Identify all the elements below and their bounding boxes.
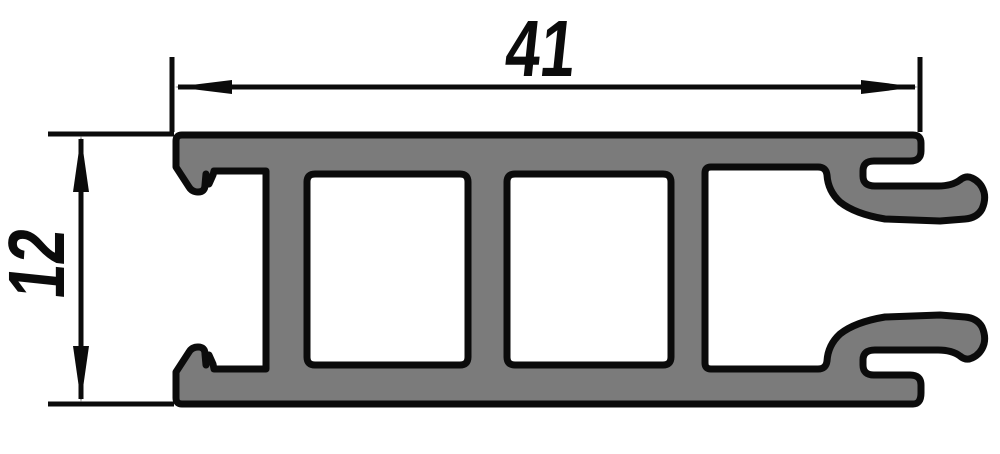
- arrowhead-right-icon: [861, 80, 918, 94]
- width-dimension-label: 41: [501, 5, 580, 94]
- dimension-height-group: 12: [0, 134, 174, 404]
- dimension-width-group: 41: [172, 5, 920, 132]
- arrowhead-left-icon: [175, 80, 232, 94]
- profile-body: [176, 135, 985, 404]
- profile-group: [176, 135, 985, 404]
- arrowhead-down-icon: [73, 346, 89, 402]
- height-dimension-label: 12: [0, 224, 82, 303]
- profile-cross-section-diagram: 41 12: [0, 0, 1000, 454]
- arrowhead-up-icon: [73, 136, 89, 192]
- technical-drawing-canvas: 41 12: [0, 0, 1000, 454]
